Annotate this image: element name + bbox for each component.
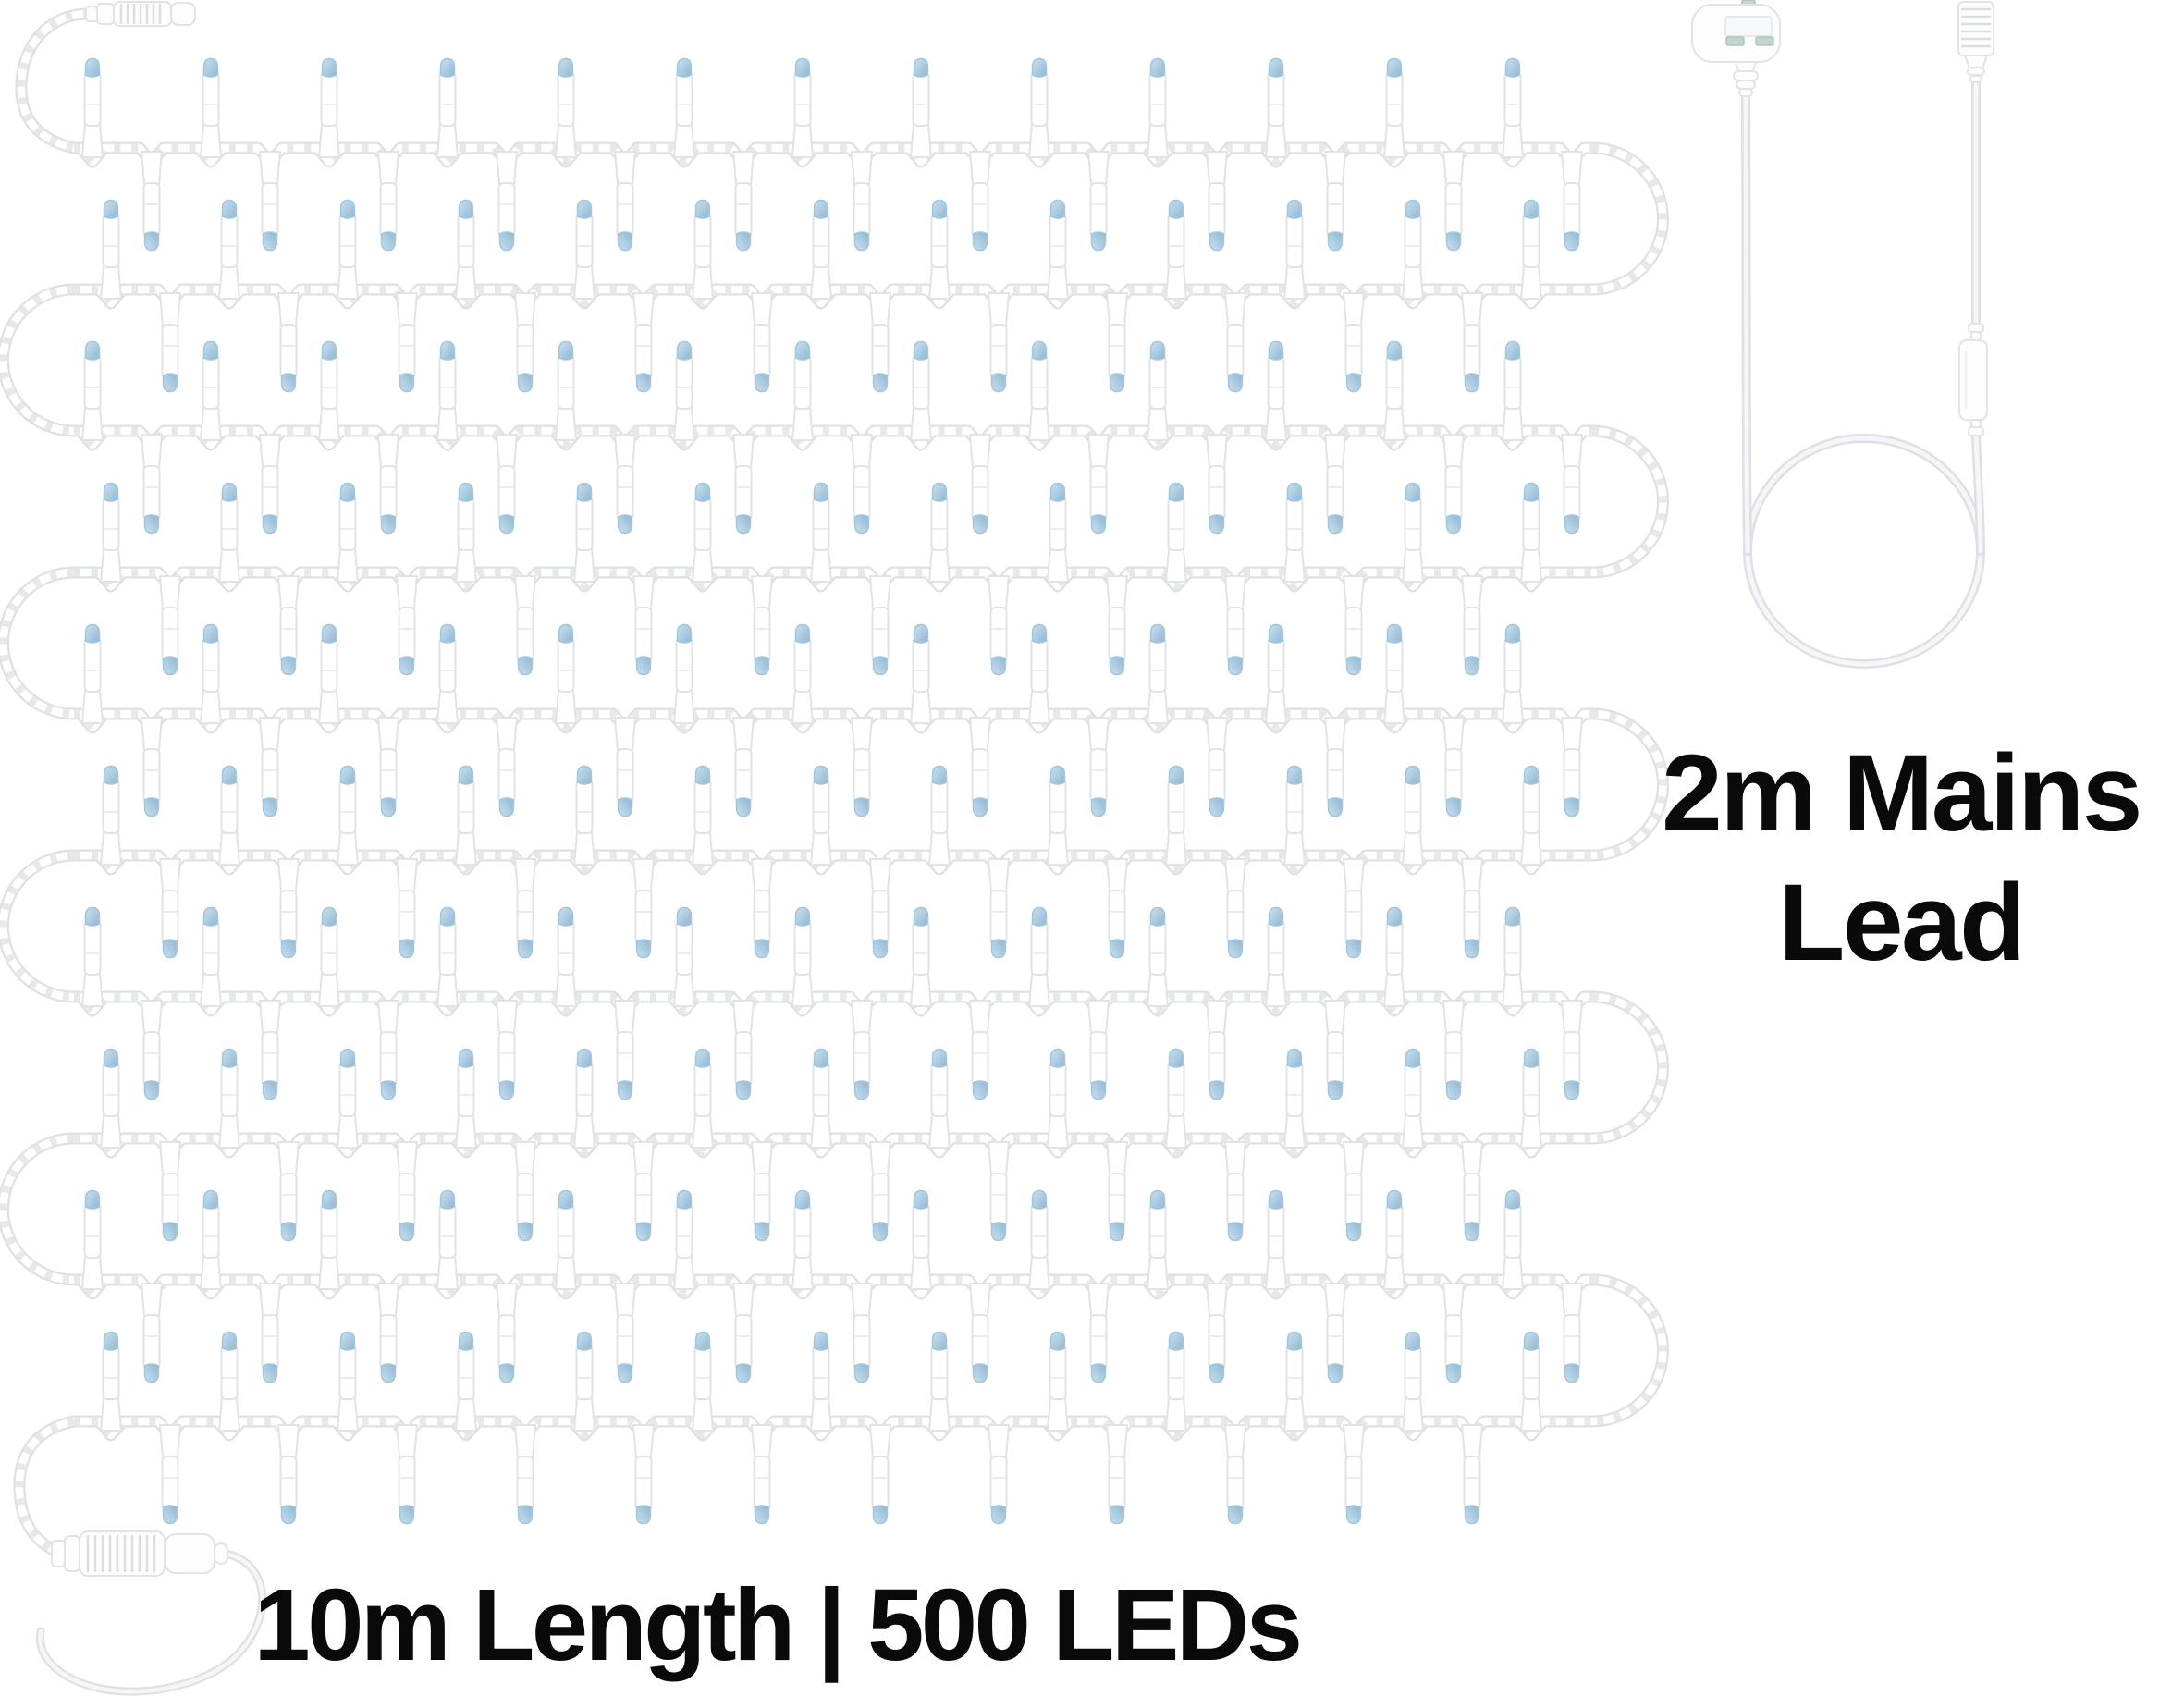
led-bulb (160, 576, 180, 675)
led-bulbs (82, 59, 1582, 1524)
led-bulb (160, 293, 180, 392)
led-bulb (988, 1142, 1009, 1241)
led-bulb (1266, 625, 1286, 724)
led-bulb (337, 484, 358, 583)
led-bulb (141, 152, 162, 251)
led-bulb (1207, 435, 1227, 534)
led-bulb (852, 435, 872, 534)
led-bulb (556, 342, 576, 441)
led-bulb (988, 1425, 1009, 1524)
led-bulb (278, 293, 299, 392)
controller-box (1959, 324, 1987, 436)
led-bulb (615, 718, 635, 817)
led-bulb (929, 201, 950, 300)
led-bulb (82, 908, 103, 1007)
led-bulb (1147, 625, 1168, 724)
led-bulb (497, 152, 517, 251)
led-bulb (1088, 152, 1109, 251)
led-bulb (556, 59, 576, 158)
led-bulb (201, 59, 221, 158)
led-bulb (101, 1050, 121, 1149)
led-bulb (437, 908, 458, 1007)
mains-lead-illustration (1692, 0, 1994, 664)
led-bulb (1147, 1191, 1168, 1290)
led-bulb (378, 718, 399, 817)
led-bulb (456, 484, 476, 583)
led-bulb (397, 293, 417, 392)
led-bulb (82, 59, 103, 158)
led-bulb (1384, 59, 1405, 158)
led-bulb (337, 1333, 358, 1432)
led-bulb (674, 1191, 694, 1290)
led-bulb (1403, 767, 1423, 866)
led-bulb (811, 484, 831, 583)
led-bulb (1462, 1142, 1482, 1241)
led-bulb (101, 484, 121, 583)
led-bulb (1088, 1284, 1109, 1383)
led-bulb (1088, 1001, 1109, 1100)
led-bulb (929, 484, 950, 583)
led-bulb (1384, 908, 1405, 1007)
led-bulb (378, 152, 399, 251)
led-bulb (733, 1284, 754, 1383)
led-bulb (319, 908, 339, 1007)
mains-lead-label-line1: 2m Mains (1618, 729, 2184, 858)
led-bulb (674, 625, 694, 724)
led-bulb (437, 342, 458, 441)
led-bulb (574, 767, 595, 866)
led-bulb (397, 1142, 417, 1241)
led-bulb (1029, 59, 1049, 158)
led-bulb (811, 767, 831, 866)
led-bulb (792, 342, 813, 441)
led-bulb (337, 201, 358, 300)
led-bulb (1207, 1284, 1227, 1383)
led-bulb (911, 625, 931, 724)
led-bulb (752, 293, 772, 392)
led-bulb (1325, 152, 1345, 251)
led-bulb (397, 576, 417, 675)
led-bulb (870, 293, 890, 392)
led-bulb (970, 718, 990, 817)
led-bulb (1266, 342, 1286, 441)
led-bulb (1462, 1425, 1482, 1524)
led-bulb (911, 1191, 931, 1290)
led-bulb (693, 484, 713, 583)
led-bulb (1325, 1001, 1345, 1100)
led-bulb (988, 293, 1009, 392)
led-bulb (101, 1333, 121, 1432)
led-bulb (1029, 1191, 1049, 1290)
led-bulb (1521, 1050, 1541, 1149)
led-bulb (1284, 484, 1305, 583)
led-bulb (278, 1142, 299, 1241)
led-bulb (1403, 201, 1423, 300)
led-bulb (1443, 1001, 1464, 1100)
led-bulb (219, 1050, 239, 1149)
led-bulb (674, 908, 694, 1007)
led-bulb (1562, 718, 1582, 817)
led-bulb (456, 201, 476, 300)
led-bulb (693, 1333, 713, 1432)
led-bulb (574, 484, 595, 583)
led-bulb (1384, 342, 1405, 441)
led-bulb (497, 1001, 517, 1100)
led-bulb (988, 576, 1009, 675)
led-bulb (852, 1001, 872, 1100)
led-bulb (278, 859, 299, 958)
led-bulb (141, 718, 162, 817)
led-bulb (219, 201, 239, 300)
led-bulb (556, 908, 576, 1007)
led-bulb (1147, 59, 1168, 158)
led-bulb (82, 342, 103, 441)
led-bulb (633, 1142, 654, 1241)
led-bulb (456, 1333, 476, 1432)
led-bulb (397, 859, 417, 958)
led-bulb (852, 152, 872, 251)
led-bulb (929, 1050, 950, 1149)
led-bulb (1443, 1284, 1464, 1383)
led-bulb (792, 625, 813, 724)
led-bulb (1344, 859, 1364, 958)
led-bulb (1048, 484, 1068, 583)
led-bulb (1147, 908, 1168, 1007)
led-bulb (141, 435, 162, 534)
led-bulb (1462, 576, 1482, 675)
mains-connector (1958, 2, 1994, 82)
led-bulb (1029, 908, 1049, 1007)
led-bulb (1344, 1425, 1364, 1524)
led-bulb (219, 1333, 239, 1432)
led-bulb (1443, 718, 1464, 817)
led-bulb (437, 625, 458, 724)
led-bulb (1107, 576, 1127, 675)
led-bulb (515, 293, 535, 392)
led-bulb (1384, 1191, 1405, 1290)
led-bulb (201, 1191, 221, 1290)
led-bulb (1207, 718, 1227, 817)
led-bulb (615, 435, 635, 534)
led-bulb (160, 859, 180, 958)
led-bulb (911, 342, 931, 441)
led-bulb (1503, 908, 1523, 1007)
led-bulb (1503, 625, 1523, 724)
led-bulb (733, 152, 754, 251)
led-bulb (1029, 625, 1049, 724)
led-bulb (556, 1191, 576, 1290)
led-bulb (160, 1142, 180, 1241)
led-bulb (1107, 859, 1127, 958)
led-bulb (1521, 201, 1541, 300)
led-bulb (852, 718, 872, 817)
led-bulb (515, 859, 535, 958)
led-bulb (1344, 293, 1364, 392)
led-bulb (1225, 293, 1245, 392)
led-bulb (674, 59, 694, 158)
led-bulb (1403, 1333, 1423, 1432)
led-bulb (970, 435, 990, 534)
led-bulb (792, 1191, 813, 1290)
led-bulb (497, 1284, 517, 1383)
led-bulb (574, 1050, 595, 1149)
led-bulb (1325, 718, 1345, 817)
led-bulb (1048, 201, 1068, 300)
led-bulb (201, 625, 221, 724)
led-bulb (852, 1284, 872, 1383)
led-bulb (1403, 1050, 1423, 1149)
led-bulb (260, 1284, 280, 1383)
led-bulb (752, 1425, 772, 1524)
led-bulb (870, 1425, 890, 1524)
led-bulb (615, 1284, 635, 1383)
led-bulb (1344, 1142, 1364, 1241)
led-bulb (260, 152, 280, 251)
led-bulb (988, 859, 1009, 958)
led-bulb (556, 625, 576, 724)
led-bulb (1147, 342, 1168, 441)
led-bulb (1562, 1284, 1582, 1383)
led-bulb (260, 435, 280, 534)
led-bulb (970, 152, 990, 251)
led-bulb (574, 1333, 595, 1432)
led-bulb (319, 342, 339, 441)
led-bulb (970, 1001, 990, 1100)
led-bulb (1048, 1333, 1068, 1432)
led-bulb (615, 152, 635, 251)
led-bulb (1225, 1142, 1245, 1241)
led-bulb (437, 1191, 458, 1290)
led-bulb (752, 1142, 772, 1241)
led-bulb (1107, 1425, 1127, 1524)
led-bulb (1107, 1142, 1127, 1241)
led-bulb (101, 767, 121, 866)
led-bulb (337, 767, 358, 866)
led-bulb (219, 484, 239, 583)
led-bulb (1521, 1333, 1541, 1432)
led-bulb (278, 1425, 299, 1524)
led-bulb (633, 859, 654, 958)
string-connector-top (86, 2, 195, 26)
led-bulb (1166, 201, 1186, 300)
led-bulb (792, 908, 813, 1007)
led-bulb (141, 1001, 162, 1100)
led-bulb (1443, 435, 1464, 534)
led-bulb (733, 435, 754, 534)
led-bulb (1029, 342, 1049, 441)
led-bulb (1266, 59, 1286, 158)
led-bulb (1207, 152, 1227, 251)
led-bulb (1503, 1191, 1523, 1290)
led-bulb (1503, 59, 1523, 158)
led-bulb (733, 718, 754, 817)
led-bulb (82, 625, 103, 724)
led-bulb (811, 1333, 831, 1432)
led-bulb (141, 1284, 162, 1383)
led-bulb (378, 435, 399, 534)
led-bulb (1266, 1191, 1286, 1290)
led-bulb (870, 1142, 890, 1241)
led-bulb (515, 1425, 535, 1524)
led-bulb (870, 859, 890, 958)
led-bulb (615, 1001, 635, 1100)
led-bulb (1562, 152, 1582, 251)
led-bulb (101, 201, 121, 300)
led-bulb (970, 1284, 990, 1383)
led-bulb (1225, 859, 1245, 958)
led-bulb (515, 1142, 535, 1241)
led-bulb (792, 59, 813, 158)
led-bulb (752, 859, 772, 958)
led-bulb (911, 908, 931, 1007)
led-bulb (378, 1001, 399, 1100)
led-bulb (1225, 576, 1245, 675)
led-bulb (733, 1001, 754, 1100)
led-bulb (515, 576, 535, 675)
led-bulb (693, 767, 713, 866)
led-bulb (1284, 1333, 1305, 1432)
led-bulb (1325, 435, 1345, 534)
led-bulb (397, 1425, 417, 1524)
led-bulb (1462, 293, 1482, 392)
led-bulb (574, 201, 595, 300)
led-bulb (633, 1425, 654, 1524)
led-bulb (1344, 576, 1364, 675)
led-bulb (378, 1284, 399, 1383)
led-bulb (201, 908, 221, 1007)
led-bulb (201, 342, 221, 441)
led-bulb (1166, 1333, 1186, 1432)
led-bulb (1284, 1050, 1305, 1149)
led-bulb (1048, 767, 1068, 866)
led-bulb (1503, 342, 1523, 441)
led-bulb (260, 718, 280, 817)
led-bulb (1048, 1050, 1068, 1149)
led-bulb (160, 1425, 180, 1524)
led-bulb (1521, 484, 1541, 583)
led-bulb (1384, 625, 1405, 724)
uk-plug (1692, 0, 1780, 96)
led-bulb (1225, 1425, 1245, 1524)
led-bulb (674, 342, 694, 441)
led-bulb (497, 718, 517, 817)
product-image: 2m Mains Lead 10m Length | 500 LEDs (0, 0, 2184, 1696)
led-bulb (911, 59, 931, 158)
led-bulb (456, 767, 476, 866)
led-bulb (1166, 1050, 1186, 1149)
led-bulb (319, 625, 339, 724)
led-bulb (456, 1050, 476, 1149)
led-bulb (752, 576, 772, 675)
led-bulb (870, 576, 890, 675)
led-bulb (811, 1050, 831, 1149)
led-bulb (1325, 1284, 1345, 1383)
led-bulb (1207, 1001, 1227, 1100)
led-bulb (1462, 859, 1482, 958)
mains-lead-label: 2m Mains Lead (1618, 729, 2184, 988)
led-bulb (1443, 152, 1464, 251)
length-led-label: 10m Length | 500 LEDs (83, 1570, 1470, 1681)
led-bulb (693, 1050, 713, 1149)
led-bulb (260, 1001, 280, 1100)
led-bulb (219, 767, 239, 866)
led-bulb (1266, 908, 1286, 1007)
led-bulb (929, 1333, 950, 1432)
led-bulb (1521, 767, 1541, 866)
led-bulb (1284, 767, 1305, 866)
led-bulb (811, 201, 831, 300)
led-bulb (82, 1191, 103, 1290)
led-bulb (633, 576, 654, 675)
led-bulb (337, 1050, 358, 1149)
led-bulb (319, 1191, 339, 1290)
led-bulb (1166, 484, 1186, 583)
led-bulb (1284, 201, 1305, 300)
led-bulb (1562, 435, 1582, 534)
led-bulb (1403, 484, 1423, 583)
led-bulb (1088, 718, 1109, 817)
led-bulb (1166, 767, 1186, 866)
led-bulb (929, 767, 950, 866)
led-bulb (1107, 293, 1127, 392)
led-bulb (278, 576, 299, 675)
led-bulb (1562, 1001, 1582, 1100)
led-bulb (693, 201, 713, 300)
led-bulb (437, 59, 458, 158)
mains-lead-label-line2: Lead (1618, 858, 2184, 988)
led-bulb (497, 435, 517, 534)
led-bulb (633, 293, 654, 392)
led-bulb (1088, 435, 1109, 534)
led-bulb (319, 59, 339, 158)
